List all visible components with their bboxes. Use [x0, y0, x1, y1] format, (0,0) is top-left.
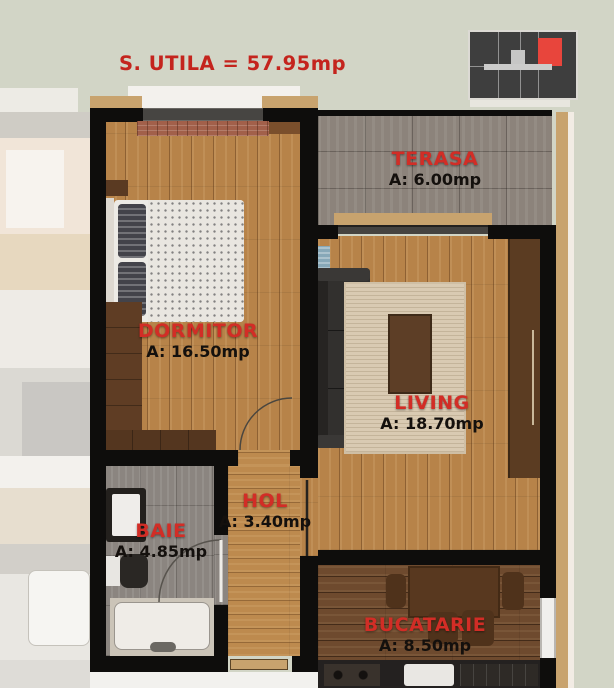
- dining-chair: [428, 612, 458, 644]
- adjacent-unit-block: [0, 488, 90, 544]
- door-gap-floor: [214, 535, 228, 605]
- logo-building-shape: [484, 64, 552, 71]
- door-gap-floor: [238, 450, 290, 466]
- upper-slab-edge: [470, 100, 570, 107]
- terrace-step: [334, 213, 492, 225]
- developer-logo: [468, 30, 578, 100]
- nightstand: [106, 180, 128, 196]
- bed-pillow: [118, 204, 146, 258]
- adjacent-unit-bathtub: [28, 570, 90, 646]
- wardrobe-handle: [532, 330, 534, 425]
- adjacent-unit-block: [0, 456, 90, 488]
- total-area-title: S. UTILA = 57.95mp: [119, 52, 346, 75]
- stove: [324, 664, 380, 686]
- sofa-armrest: [316, 268, 370, 281]
- terrace-railing: [318, 110, 552, 116]
- bathroom-sink-basin: [112, 494, 140, 536]
- dresser: [104, 430, 216, 452]
- kitchen-appliance: [460, 664, 538, 686]
- kitchen-window: [540, 598, 556, 658]
- dining-chair: [462, 610, 494, 646]
- hol-floor: [228, 466, 300, 656]
- toilet: [120, 554, 148, 588]
- wall-bottom: [292, 656, 318, 672]
- toilet-tank: [106, 556, 120, 586]
- dresser: [104, 302, 142, 432]
- corridor-slab: [90, 672, 318, 688]
- wood-frame-right: [556, 112, 568, 688]
- radiator: [266, 122, 300, 134]
- window-sill-brick: [137, 121, 269, 136]
- bed-duvet: [148, 200, 244, 322]
- adjacent-unit-block: [0, 660, 90, 688]
- wall-hol-right: [300, 556, 318, 672]
- adjacent-unit-block: [0, 290, 90, 368]
- adjacent-unit-block: [0, 88, 78, 114]
- wall-bottom: [90, 656, 228, 672]
- wall-dormitor-right: [300, 108, 318, 478]
- sliding-door: [338, 225, 488, 234]
- bedroom-window: [143, 108, 263, 121]
- wall-baie-hol: [214, 450, 228, 535]
- wall-left: [90, 108, 106, 672]
- floor-plan: TERASA A: 6.00mp DORMITOR A: 16.50mp LIV…: [0, 0, 614, 688]
- adjacent-unit-block: [0, 234, 90, 290]
- bathtub-faucet: [150, 642, 176, 652]
- logo-building-shape: [511, 50, 525, 64]
- adjacent-unit-block: [0, 112, 90, 138]
- logo-red-block: [538, 38, 562, 66]
- dining-chair: [502, 572, 524, 610]
- entrance-door: [230, 659, 288, 670]
- wood-trim: [90, 96, 142, 108]
- wardrobe: [508, 236, 540, 478]
- wall-terrace-living: [318, 225, 338, 239]
- wall-terrace-living: [488, 225, 540, 239]
- frame-highlight-right: [568, 112, 574, 688]
- wall-dormitor-bottom: [290, 450, 318, 466]
- wall-living-kitchen: [318, 550, 540, 565]
- coffee-table: [388, 314, 432, 394]
- adjacent-unit-block: [22, 382, 90, 456]
- terasa-floor: [318, 116, 552, 226]
- dining-chair: [386, 574, 406, 608]
- kitchen-sink: [404, 664, 454, 686]
- adjacent-unit-block: [6, 150, 64, 228]
- wood-trim: [262, 96, 318, 108]
- door-gap-floor: [300, 478, 318, 556]
